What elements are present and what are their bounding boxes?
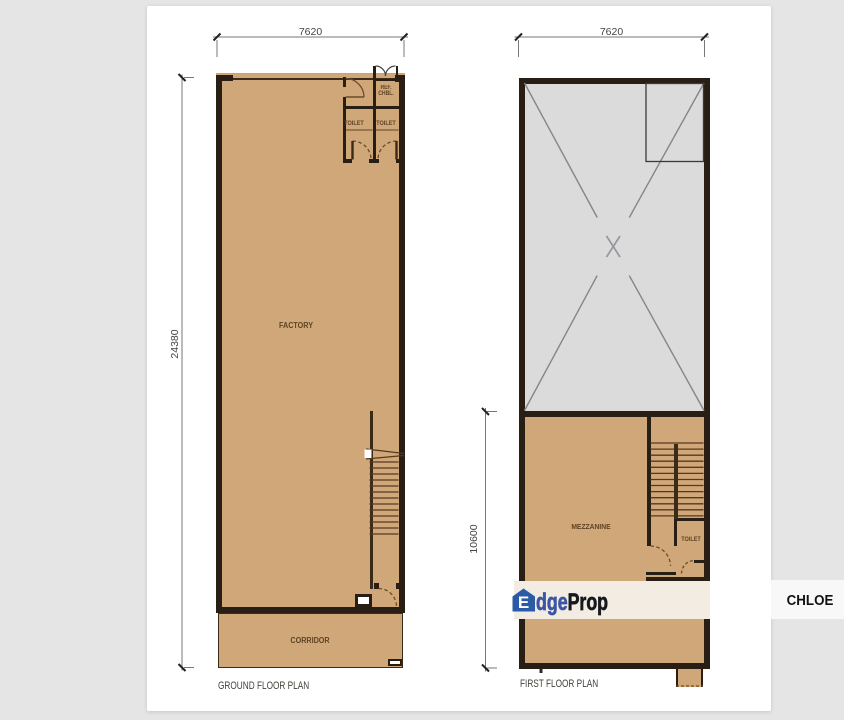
svg-text:24380: 24380 xyxy=(169,329,181,358)
svg-text:7620: 7620 xyxy=(299,26,323,38)
svg-text:7620: 7620 xyxy=(600,26,624,38)
svg-text:E: E xyxy=(518,593,529,612)
svg-text:10600: 10600 xyxy=(468,524,480,553)
